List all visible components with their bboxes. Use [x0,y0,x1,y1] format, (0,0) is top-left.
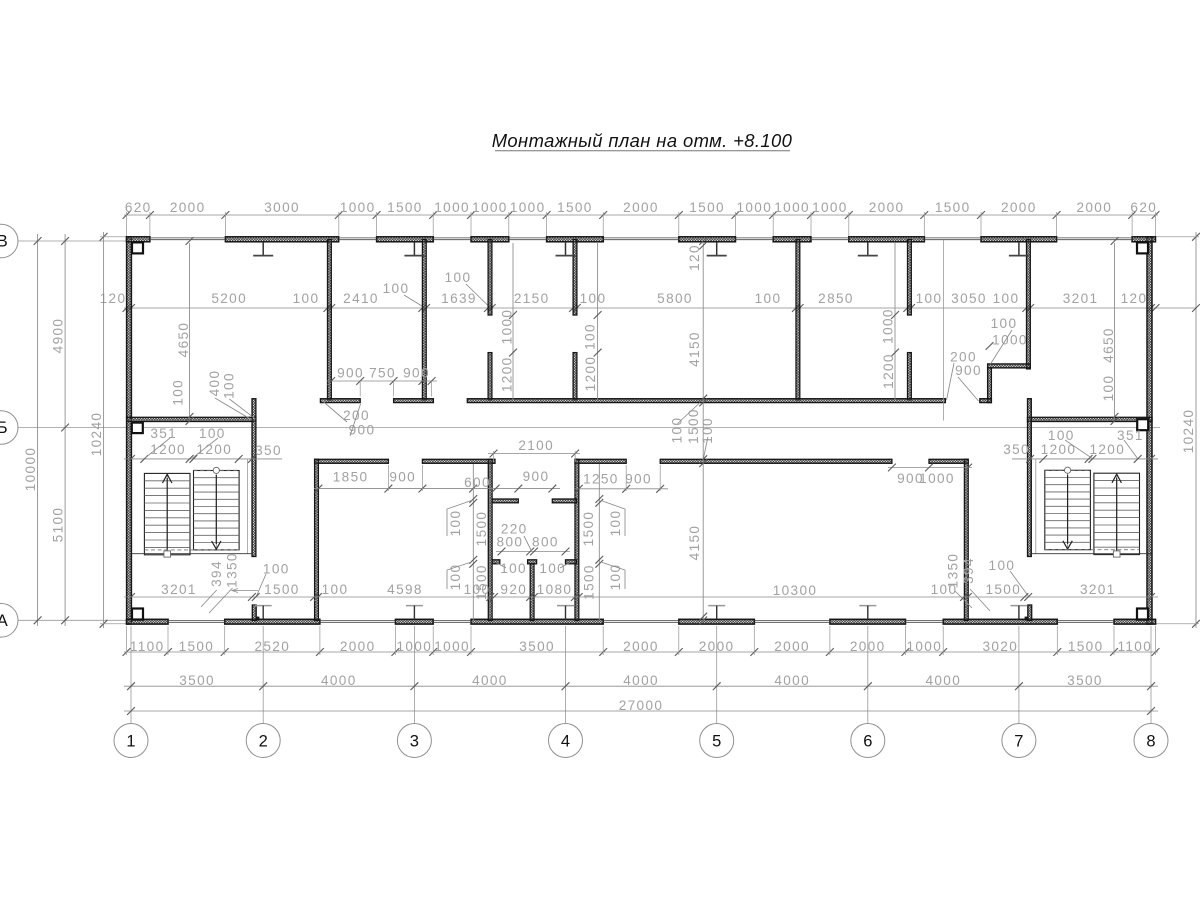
svg-text:1080: 1080 [537,582,573,597]
svg-text:100: 100 [989,558,1016,573]
svg-text:3201: 3201 [161,582,197,597]
svg-text:4000: 4000 [925,673,961,688]
svg-text:1500: 1500 [1068,639,1104,654]
svg-text:2410: 2410 [343,291,379,306]
svg-text:100: 100 [383,281,410,296]
svg-text:900: 900 [625,472,652,487]
svg-text:620: 620 [125,200,152,215]
svg-text:900: 900 [955,363,982,378]
svg-text:2000: 2000 [850,639,886,654]
svg-text:2000: 2000 [1076,200,1112,215]
svg-text:2000: 2000 [623,639,659,654]
svg-text:1000: 1000 [774,200,810,215]
svg-text:1000: 1000 [396,639,432,654]
svg-text:4000: 4000 [774,673,810,688]
svg-text:120: 120 [1121,291,1148,306]
svg-text:394: 394 [961,557,976,584]
svg-text:900: 900 [389,470,416,485]
svg-text:100: 100 [1101,375,1116,402]
svg-text:800: 800 [532,535,559,550]
svg-text:1500: 1500 [582,564,597,600]
svg-text:394: 394 [209,560,224,587]
svg-text:800: 800 [497,535,524,550]
svg-text:1850: 1850 [333,470,369,485]
svg-text:8: 8 [1146,732,1155,750]
svg-text:900: 900 [523,469,550,484]
svg-text:1500: 1500 [387,200,423,215]
svg-text:1200: 1200 [196,442,232,457]
svg-text:1500: 1500 [935,200,971,215]
svg-text:2520: 2520 [254,639,290,654]
svg-text:350: 350 [1003,442,1030,457]
svg-text:4900: 4900 [51,318,66,354]
svg-text:351: 351 [1117,428,1144,443]
svg-text:351: 351 [150,426,177,441]
svg-text:3050: 3050 [951,291,987,306]
svg-text:4000: 4000 [472,673,508,688]
svg-text:100: 100 [170,379,185,406]
svg-text:4150: 4150 [687,525,702,561]
svg-text:100: 100 [222,372,237,399]
svg-text:100: 100 [916,291,943,306]
svg-text:В: В [0,233,8,251]
svg-text:1000: 1000 [919,471,955,486]
svg-text:900: 900 [349,423,376,438]
svg-text:3500: 3500 [519,639,555,654]
svg-text:3500: 3500 [179,673,215,688]
svg-text:10000: 10000 [23,447,38,492]
svg-text:4000: 4000 [321,673,357,688]
svg-text:4000: 4000 [623,673,659,688]
svg-text:1000: 1000 [812,200,848,215]
svg-text:100: 100 [991,316,1018,331]
svg-text:1500: 1500 [557,200,593,215]
svg-text:1250: 1250 [583,472,619,487]
svg-text:27000: 27000 [619,698,664,713]
svg-text:100: 100 [539,561,566,576]
svg-text:1200: 1200 [1089,442,1125,457]
svg-text:1200: 1200 [583,356,598,392]
svg-text:2100: 2100 [518,438,554,453]
svg-text:1100: 1100 [130,639,165,654]
svg-text:100: 100 [1048,428,1075,443]
svg-text:600: 600 [464,475,491,490]
svg-text:2000: 2000 [774,639,810,654]
svg-text:2: 2 [259,732,268,750]
svg-text:6: 6 [863,732,872,750]
svg-text:1500: 1500 [474,511,489,547]
svg-text:10240: 10240 [1181,409,1196,454]
svg-text:100: 100 [580,291,607,306]
svg-text:1000: 1000 [472,200,508,215]
svg-text:3020: 3020 [982,639,1018,654]
svg-text:120: 120 [687,244,702,271]
svg-text:100: 100 [263,561,290,576]
svg-text:Монтажный план на отм. +8.100: Монтажный план на отм. +8.100 [492,130,793,151]
svg-text:1500: 1500 [474,564,489,600]
svg-text:4598: 4598 [387,582,423,597]
svg-text:100: 100 [322,582,349,597]
svg-text:4150: 4150 [687,331,702,367]
svg-text:10300: 10300 [773,583,818,598]
svg-text:1000: 1000 [992,333,1028,348]
svg-text:5100: 5100 [51,507,66,543]
svg-text:А: А [0,612,8,630]
svg-text:5: 5 [712,732,721,750]
svg-text:1000: 1000 [499,309,514,345]
svg-text:4650: 4650 [176,322,191,358]
svg-text:1100: 1100 [1117,639,1152,654]
svg-text:1000: 1000 [736,200,772,215]
svg-text:3201: 3201 [1063,291,1099,306]
svg-text:10240: 10240 [89,412,104,457]
svg-text:1500: 1500 [985,582,1021,597]
svg-text:1200: 1200 [881,353,896,389]
svg-text:1000: 1000 [340,200,376,215]
svg-text:1000: 1000 [906,639,942,654]
svg-text:1500: 1500 [264,582,300,597]
svg-text:100: 100 [448,510,463,537]
svg-text:4: 4 [561,732,570,750]
svg-text:1500: 1500 [581,511,596,547]
svg-text:7: 7 [1014,732,1023,750]
svg-text:2000: 2000 [340,639,376,654]
svg-text:3: 3 [410,732,419,750]
svg-text:4650: 4650 [1101,327,1116,363]
svg-text:1350: 1350 [225,552,240,588]
svg-text:2000: 2000 [623,200,659,215]
svg-text:1000: 1000 [881,308,896,344]
svg-text:1200: 1200 [500,356,515,392]
svg-text:5200: 5200 [211,291,247,306]
svg-text:1500: 1500 [179,639,215,654]
svg-text:1000: 1000 [510,200,546,215]
svg-text:1000: 1000 [434,639,470,654]
svg-text:2000: 2000 [1001,200,1037,215]
svg-text:1500: 1500 [689,200,725,215]
svg-text:100: 100 [993,291,1020,306]
svg-text:100: 100 [608,510,623,537]
svg-text:5800: 5800 [657,291,693,306]
svg-text:2150: 2150 [514,291,550,306]
svg-text:620: 620 [1130,200,1157,215]
svg-text:100: 100 [931,582,958,597]
svg-text:350: 350 [255,443,282,458]
svg-text:900: 900 [403,366,430,381]
svg-text:100: 100 [448,564,463,591]
svg-text:2000: 2000 [869,200,905,215]
svg-text:1639: 1639 [441,291,477,306]
svg-text:100: 100 [583,323,598,350]
svg-text:100: 100 [445,270,472,285]
svg-text:100: 100 [608,564,623,591]
svg-text:1: 1 [126,732,135,750]
svg-text:3500: 3500 [1067,673,1103,688]
svg-text:100: 100 [670,417,685,444]
svg-text:3201: 3201 [1080,582,1116,597]
svg-text:100: 100 [293,291,320,306]
svg-text:2000: 2000 [699,639,735,654]
svg-text:920: 920 [500,582,527,597]
svg-text:Б: Б [0,419,8,437]
svg-text:3000: 3000 [264,200,300,215]
svg-text:100: 100 [199,426,226,441]
svg-text:750: 750 [369,366,396,381]
svg-text:2000: 2000 [170,200,206,215]
svg-text:100: 100 [755,291,782,306]
svg-text:2850: 2850 [818,291,854,306]
svg-text:100: 100 [500,561,527,576]
svg-text:900: 900 [337,366,364,381]
svg-text:1000: 1000 [434,200,470,215]
svg-text:400: 400 [207,370,222,397]
